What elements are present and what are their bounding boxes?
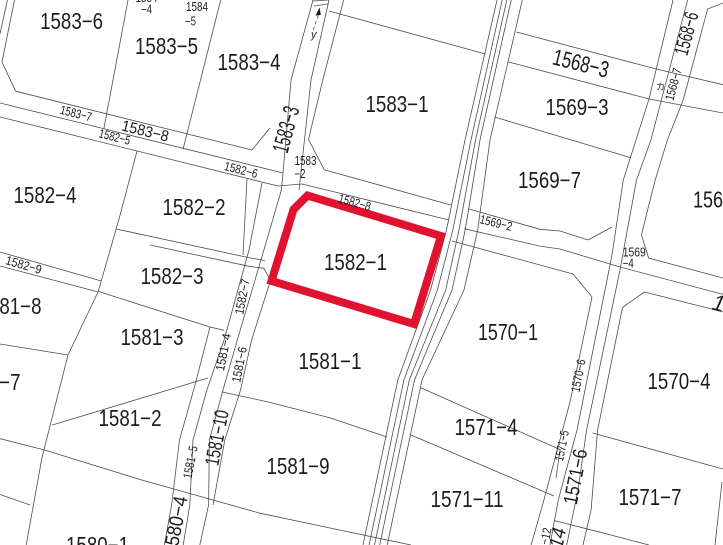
svg-text:1583−1: 1583−1 xyxy=(366,91,429,117)
svg-text:1571−4: 1571−4 xyxy=(455,414,518,440)
svg-text:−2: −2 xyxy=(295,167,306,181)
svg-text:−4: −4 xyxy=(141,2,152,16)
svg-text:1582−3: 1582−3 xyxy=(141,263,204,289)
svg-text:1583−5: 1583−5 xyxy=(135,33,198,59)
svg-text:1583−4: 1583−4 xyxy=(218,49,281,75)
svg-text:1571−11: 1571−11 xyxy=(431,486,504,512)
svg-text:1581−7: 1581−7 xyxy=(0,369,21,395)
svg-text:1569−7: 1569−7 xyxy=(518,167,581,193)
svg-text:1582−2: 1582−2 xyxy=(163,194,226,220)
svg-text:−5: −5 xyxy=(185,14,196,28)
svg-text:1581−9: 1581−9 xyxy=(267,453,330,479)
svg-text:1581−8: 1581−8 xyxy=(0,293,42,319)
svg-text:1581−1: 1581−1 xyxy=(299,348,362,374)
svg-text:−4: −4 xyxy=(623,257,634,271)
svg-text:1571−7: 1571−7 xyxy=(619,484,682,510)
svg-text:1581−3: 1581−3 xyxy=(121,324,184,350)
svg-text:カ: カ xyxy=(656,82,665,92)
svg-text:1581−2: 1581−2 xyxy=(99,405,162,431)
svg-text:1582−1: 1582−1 xyxy=(324,249,387,275)
svg-text:1569−3: 1569−3 xyxy=(546,94,609,120)
svg-text:1582−4: 1582−4 xyxy=(14,182,77,208)
svg-text:1570−4: 1570−4 xyxy=(648,368,711,394)
svg-text:1580−1: 1580−1 xyxy=(66,532,129,545)
svg-text:1583: 1583 xyxy=(295,154,317,168)
svg-text:1583−6: 1583−6 xyxy=(40,8,103,34)
svg-text:1584: 1584 xyxy=(186,0,208,14)
svg-text:1570−1: 1570−1 xyxy=(478,319,538,345)
svg-text:1568: 1568 xyxy=(693,187,723,213)
